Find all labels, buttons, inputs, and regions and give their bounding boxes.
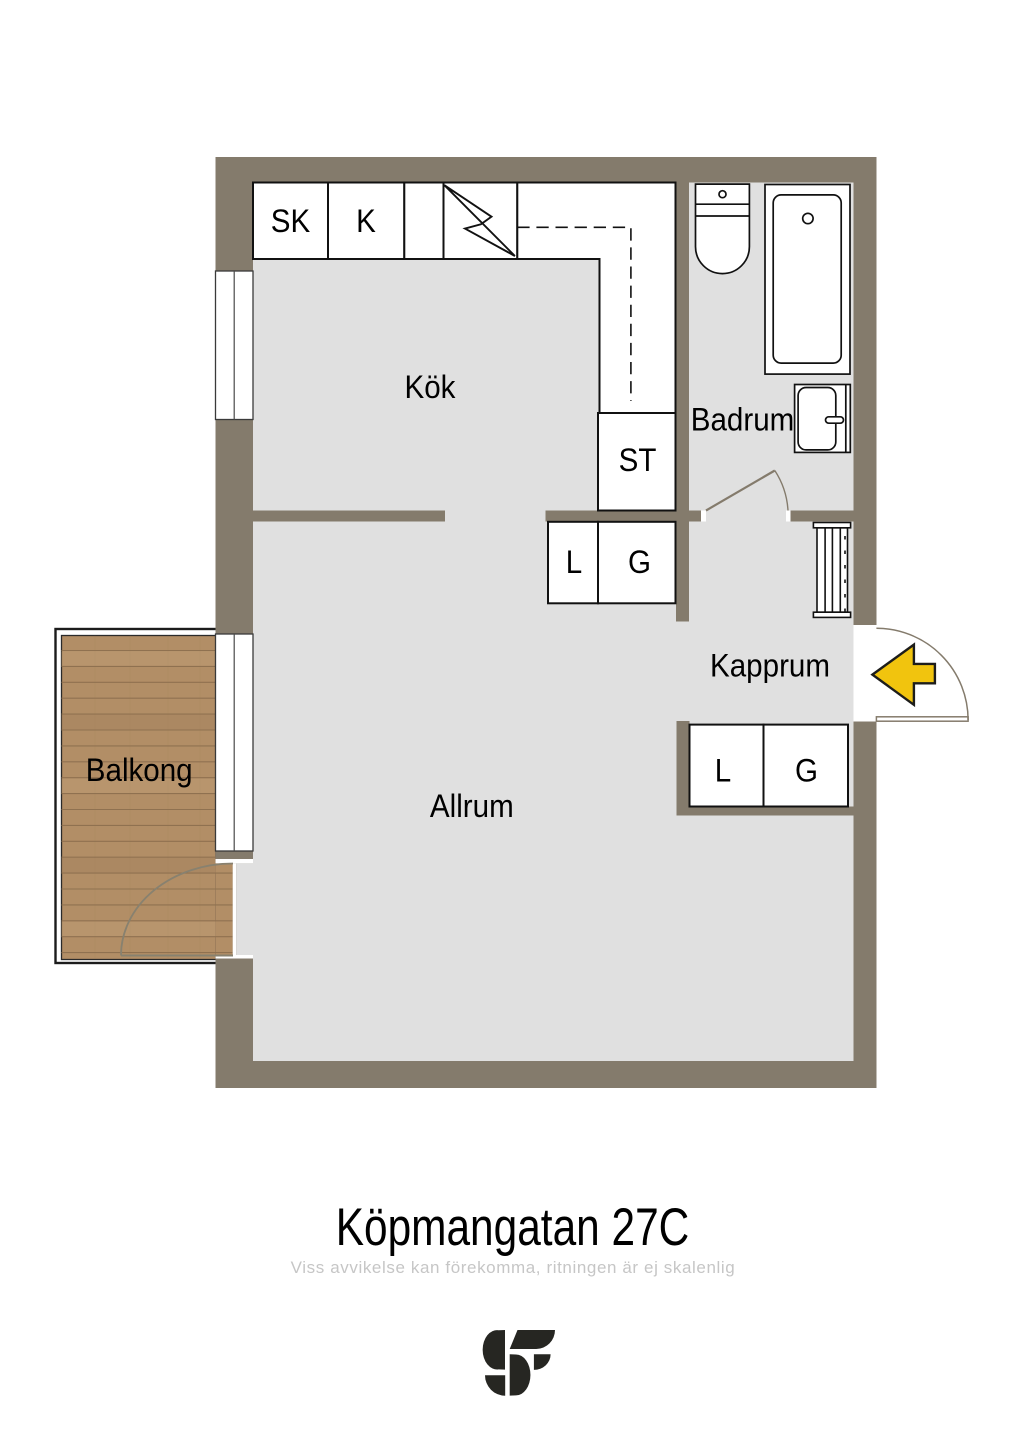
svg-text:Allrum: Allrum	[430, 788, 514, 825]
svg-text:Kapprum: Kapprum	[710, 647, 830, 684]
svg-text:G: G	[628, 544, 651, 581]
svg-text:Balkong: Balkong	[86, 752, 193, 789]
svg-text:ST: ST	[619, 442, 657, 479]
svg-text:Viss avvikelse kan förekomma,: Viss avvikelse kan förekomma, ritningen …	[291, 1258, 736, 1277]
svg-text:L: L	[715, 752, 731, 789]
svg-text:Köpmangatan 27C: Köpmangatan 27C	[336, 1198, 690, 1257]
svg-text:SK: SK	[271, 203, 311, 240]
svg-text:L: L	[566, 544, 582, 581]
svg-text:K: K	[356, 203, 376, 240]
svg-text:Kök: Kök	[405, 369, 456, 406]
svg-text:Badrum: Badrum	[691, 401, 795, 438]
svg-text:G: G	[795, 752, 818, 789]
